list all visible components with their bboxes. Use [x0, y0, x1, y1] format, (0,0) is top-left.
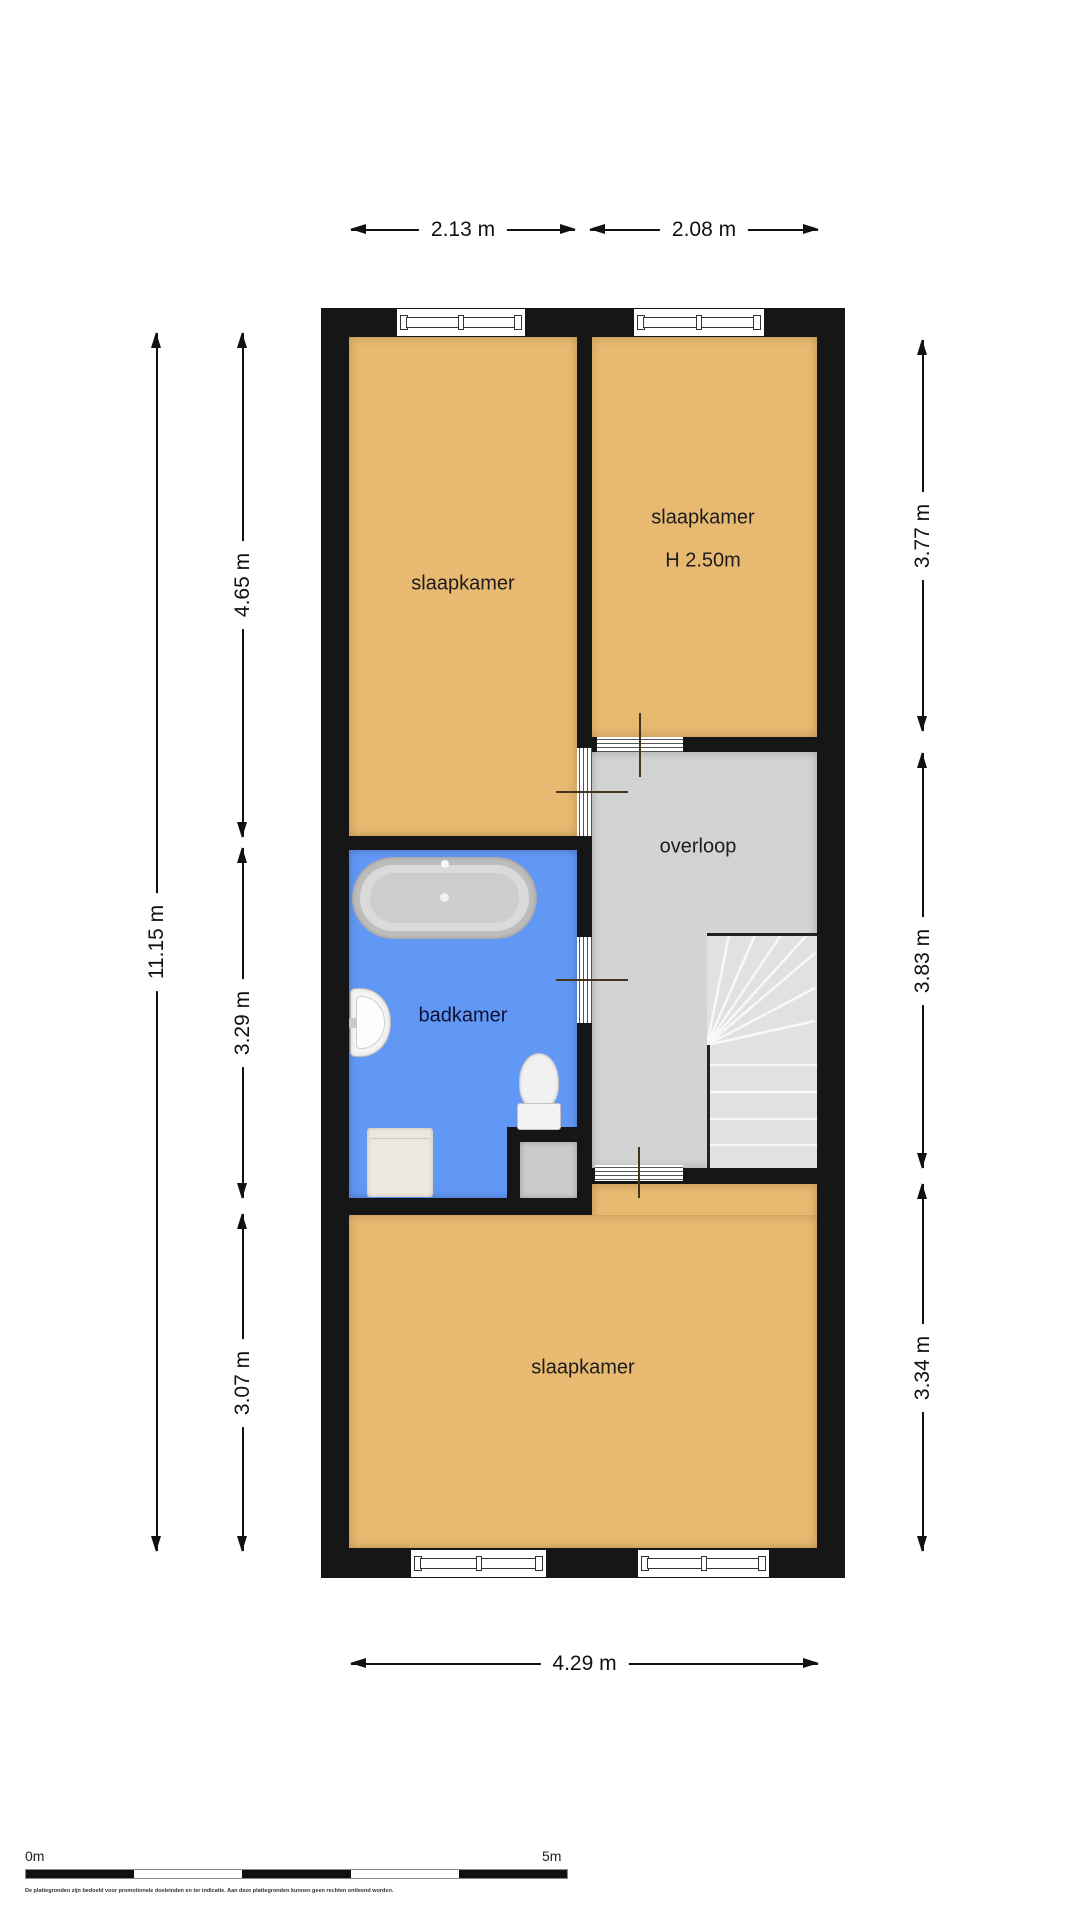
arrow-up-icon — [237, 332, 247, 348]
stairs-icon — [707, 933, 817, 1168]
room-label-bathroom: badkamer — [419, 1005, 508, 1028]
sink-basin — [356, 996, 385, 1049]
toilet-icon — [519, 1053, 559, 1109]
dimension-label: 4.29 m — [540, 1650, 628, 1678]
window-frame — [514, 315, 522, 330]
scale-bar — [25, 1869, 568, 1879]
arrow-up-icon — [237, 847, 247, 863]
arrow-down-icon — [917, 1536, 927, 1552]
closet-wall-left — [507, 1127, 520, 1198]
window-icon — [638, 1550, 769, 1577]
bathtub-drain — [440, 893, 449, 902]
interior-wall-bedroom1-bathroom — [335, 836, 592, 850]
scale-segment — [459, 1870, 567, 1878]
dimension-label: 3.83 m — [909, 916, 937, 1004]
room-label-landing: overloop — [660, 836, 737, 859]
window-frame — [701, 1556, 707, 1571]
scale-start-label: 0m — [25, 1848, 44, 1864]
arrow-down-icon — [151, 1536, 161, 1552]
dimension-label: 4.65 m — [229, 541, 257, 629]
dimension-label: 3.29 m — [229, 979, 257, 1067]
scale-segment — [242, 1870, 350, 1878]
sink-tap — [349, 1018, 357, 1028]
bathtub-icon — [352, 857, 537, 939]
arrow-left-icon — [350, 224, 366, 234]
arrow-right-icon — [803, 1658, 819, 1668]
window-frame — [535, 1556, 543, 1571]
door-tick — [556, 979, 628, 981]
window-frame — [476, 1556, 482, 1571]
room-label-bedroom-top-right: slaapkamer — [651, 507, 754, 530]
window-frame — [458, 315, 464, 330]
dimension-label: 3.34 m — [909, 1323, 937, 1411]
arrow-up-icon — [917, 339, 927, 355]
window-icon — [397, 309, 525, 336]
washing-machine-lid — [370, 1138, 430, 1139]
room-height-note: H 2.50m — [665, 550, 741, 573]
dimension-label: 3.77 m — [909, 491, 937, 579]
window-frame — [753, 315, 761, 330]
window-frame — [758, 1556, 766, 1571]
scale-segment — [26, 1870, 134, 1878]
room-bedroom-bottom-floor — [349, 1215, 817, 1548]
arrow-up-icon — [917, 752, 927, 768]
arrow-right-icon — [560, 224, 576, 234]
washing-machine-icon — [367, 1128, 433, 1197]
arrow-down-icon — [237, 1536, 247, 1552]
arrow-right-icon — [803, 224, 819, 234]
dimension-label: 2.13 m — [419, 216, 507, 244]
door-tick — [639, 713, 641, 777]
arrow-down-icon — [917, 1153, 927, 1169]
arrow-down-icon — [237, 1183, 247, 1199]
arrow-down-icon — [917, 716, 927, 732]
arrow-up-icon — [151, 332, 161, 348]
arrow-left-icon — [589, 224, 605, 234]
disclaimer-text: De plattegronden zijn bedoeld voor promo… — [25, 1888, 445, 1894]
window-frame — [696, 315, 702, 330]
dimension-label: 11.15 m — [143, 893, 171, 991]
room-label-bedroom-top-left: slaapkamer — [411, 573, 514, 596]
door-tick — [556, 791, 628, 793]
window-icon — [634, 309, 764, 336]
room-bedroom-top-right-floor — [590, 337, 817, 737]
window-icon — [411, 1550, 546, 1577]
closet-floor — [520, 1142, 577, 1198]
arrow-down-icon — [237, 822, 247, 838]
bathtub-faucet — [441, 860, 449, 868]
dimension-label: 3.07 m — [229, 1338, 257, 1426]
interior-wall-bathroom-bedroom3 — [335, 1198, 592, 1215]
dimension-label: 2.08 m — [660, 216, 748, 244]
door-tick — [638, 1147, 640, 1198]
floorplan-canvas: slaapkamer slaapkamer H 2.50m overloop b… — [0, 0, 1080, 1920]
arrow-left-icon — [350, 1658, 366, 1668]
arrow-up-icon — [237, 1213, 247, 1229]
toilet-cistern — [517, 1103, 561, 1130]
scale-end-label: 5m — [542, 1848, 561, 1864]
arrow-up-icon — [917, 1183, 927, 1199]
room-label-bedroom-bottom: slaapkamer — [531, 1357, 634, 1380]
